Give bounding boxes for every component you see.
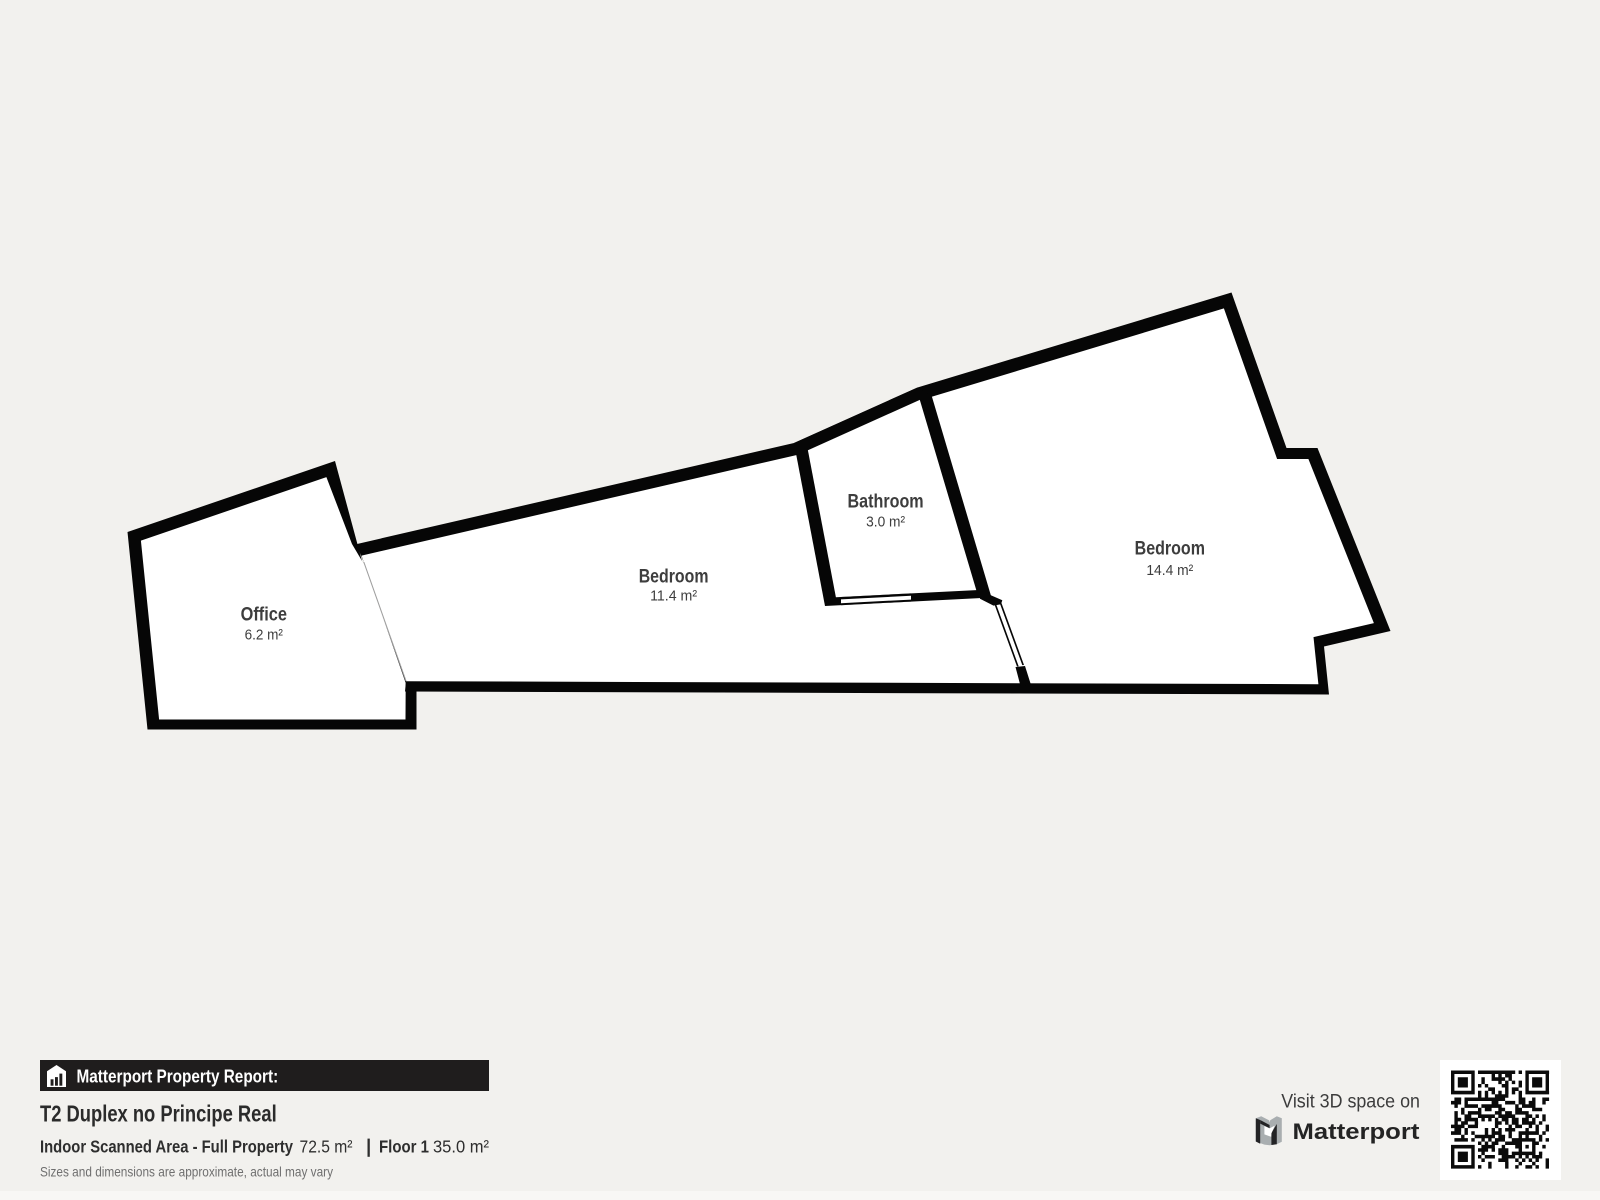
svg-text:Office: Office xyxy=(241,604,287,626)
svg-text:35.0 m²: 35.0 m² xyxy=(433,1137,489,1157)
svg-text:Bedroom: Bedroom xyxy=(1135,538,1205,560)
svg-text:Visit 3D space on: Visit 3D space on xyxy=(1281,1092,1420,1113)
svg-text:Bathroom: Bathroom xyxy=(848,491,924,513)
svg-text:6.2 m²: 6.2 m² xyxy=(245,627,283,644)
svg-text:Sizes and dimensions are appro: Sizes and dimensions are approximate, ac… xyxy=(40,1165,333,1180)
svg-text:Matterport Property Report:: Matterport Property Report: xyxy=(77,1066,279,1087)
svg-text:Floor 1: Floor 1 xyxy=(379,1137,429,1157)
svg-text:72.5 m²: 72.5 m² xyxy=(300,1137,353,1157)
svg-text:11.4 m²: 11.4 m² xyxy=(650,588,697,605)
svg-text:T2 Duplex no Principe Real: T2 Duplex no Principe Real xyxy=(40,1100,277,1126)
svg-text:Indoor Scanned Area - Full Pro: Indoor Scanned Area - Full Property xyxy=(40,1137,293,1157)
svg-text:Bedroom: Bedroom xyxy=(639,566,709,588)
svg-text:3.0 m²: 3.0 m² xyxy=(866,513,905,530)
svg-text:Matterport: Matterport xyxy=(1293,1119,1420,1144)
svg-text:14.4 m²: 14.4 m² xyxy=(1146,562,1193,579)
